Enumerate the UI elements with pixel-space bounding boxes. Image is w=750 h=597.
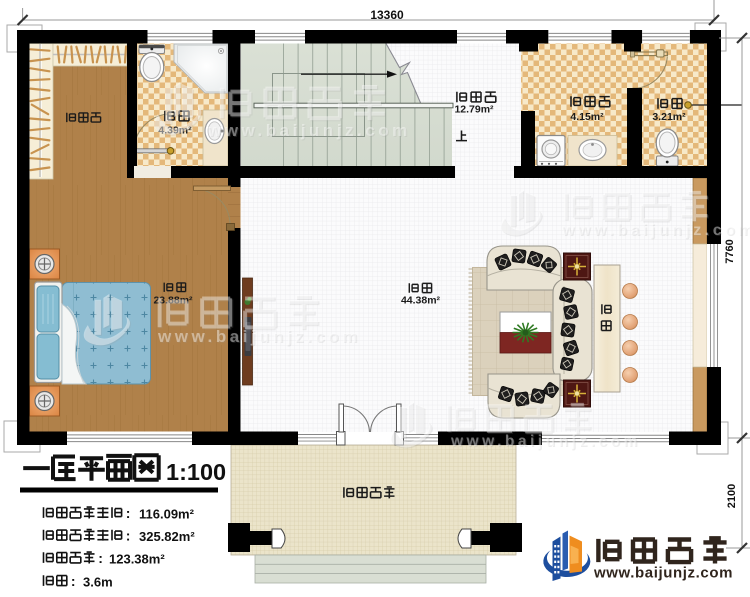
svg-text:123.38m²: 123.38m²	[109, 551, 165, 566]
svg-text:3.21m²: 3.21m²	[652, 111, 686, 123]
svg-text:44.38m²: 44.38m²	[401, 295, 441, 307]
svg-text::: :	[126, 528, 131, 544]
svg-text:13360: 13360	[370, 8, 404, 22]
svg-text:116.09m²: 116.09m²	[139, 506, 195, 521]
svg-text:www.baijunjz.com: www.baijunjz.com	[450, 433, 641, 450]
svg-text:www.baijunjz.com: www.baijunjz.com	[561, 222, 750, 239]
svg-text:3.6m: 3.6m	[83, 574, 113, 589]
svg-text:4.15m²: 4.15m²	[570, 111, 604, 123]
svg-text::: :	[71, 573, 76, 589]
svg-text:www.baijunjz.com: www.baijunjz.com	[157, 327, 361, 346]
svg-text::: :	[98, 550, 103, 566]
svg-text:12.79m²: 12.79m²	[454, 104, 494, 116]
svg-text:7760: 7760	[724, 239, 736, 263]
svg-text:2100: 2100	[726, 484, 738, 508]
svg-text:325.82m²: 325.82m²	[139, 529, 195, 544]
svg-text:www.baijunjz.com: www.baijunjz.com	[593, 565, 733, 582]
svg-text:1:100: 1:100	[166, 459, 226, 485]
svg-text:www.baijunjz.com: www.baijunjz.com	[207, 121, 411, 140]
svg-text::: :	[126, 505, 131, 521]
